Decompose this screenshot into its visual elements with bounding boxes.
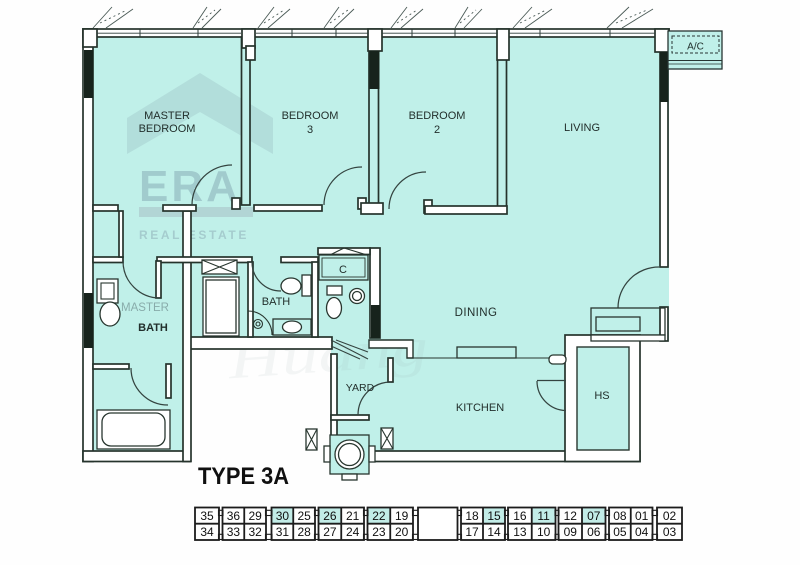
svg-text:HS: HS	[594, 390, 609, 402]
svg-text:05: 05	[613, 525, 627, 539]
svg-text:17: 17	[465, 525, 479, 539]
svg-text:BEDROOM: BEDROOM	[409, 110, 466, 122]
svg-text:C: C	[339, 264, 347, 276]
svg-text:13: 13	[513, 525, 527, 539]
svg-text:21: 21	[346, 509, 360, 523]
svg-text:16: 16	[513, 509, 527, 523]
svg-text:01: 01	[635, 509, 649, 523]
svg-text:10: 10	[537, 525, 551, 539]
svg-text:BATH: BATH	[262, 296, 291, 308]
svg-text:BEDROOM: BEDROOM	[139, 123, 196, 135]
svg-text:28: 28	[297, 525, 311, 539]
svg-text:20: 20	[395, 525, 409, 539]
svg-text:14: 14	[487, 525, 501, 539]
svg-text:36: 36	[227, 509, 241, 523]
svg-text:06: 06	[587, 525, 601, 539]
svg-text:19: 19	[395, 509, 409, 523]
svg-text:02: 02	[663, 509, 677, 523]
svg-text:24: 24	[346, 525, 360, 539]
svg-text:03: 03	[663, 525, 677, 539]
svg-text:08: 08	[613, 509, 627, 523]
svg-text:07: 07	[587, 509, 601, 523]
svg-text:BATH: BATH	[138, 322, 168, 334]
svg-text:30: 30	[276, 509, 290, 523]
svg-text:33: 33	[227, 525, 241, 539]
svg-text:11: 11	[537, 509, 550, 523]
svg-text:25: 25	[297, 509, 311, 523]
svg-text:LIVING: LIVING	[564, 122, 600, 134]
svg-text:35: 35	[200, 509, 214, 523]
svg-text:3: 3	[307, 124, 313, 136]
svg-text:04: 04	[635, 525, 649, 539]
svg-text:REAL ESTATE: REAL ESTATE	[139, 228, 249, 242]
svg-text:18: 18	[465, 509, 479, 523]
svg-text:BEDROOM: BEDROOM	[282, 110, 339, 122]
svg-text:31: 31	[276, 525, 290, 539]
svg-text:DINING: DINING	[455, 307, 498, 319]
svg-text:22: 22	[372, 509, 386, 523]
svg-text:MASTER: MASTER	[121, 302, 169, 314]
svg-text:MASTER: MASTER	[144, 110, 190, 122]
svg-text:TYPE 3A: TYPE 3A	[198, 463, 289, 490]
svg-text:2: 2	[434, 124, 440, 136]
svg-text:32: 32	[248, 525, 262, 539]
svg-text:12: 12	[564, 509, 578, 523]
svg-text:29: 29	[248, 509, 262, 523]
svg-text:ERA: ERA	[139, 162, 241, 211]
svg-text:15: 15	[487, 509, 501, 523]
svg-text:23: 23	[372, 525, 386, 539]
svg-text:27: 27	[323, 525, 337, 539]
svg-text:A/C: A/C	[687, 42, 704, 53]
svg-text:YARD: YARD	[346, 382, 375, 394]
svg-text:34: 34	[200, 525, 214, 539]
svg-text:KITCHEN: KITCHEN	[456, 402, 504, 414]
svg-text:09: 09	[564, 525, 578, 539]
svg-text:26: 26	[323, 509, 337, 523]
